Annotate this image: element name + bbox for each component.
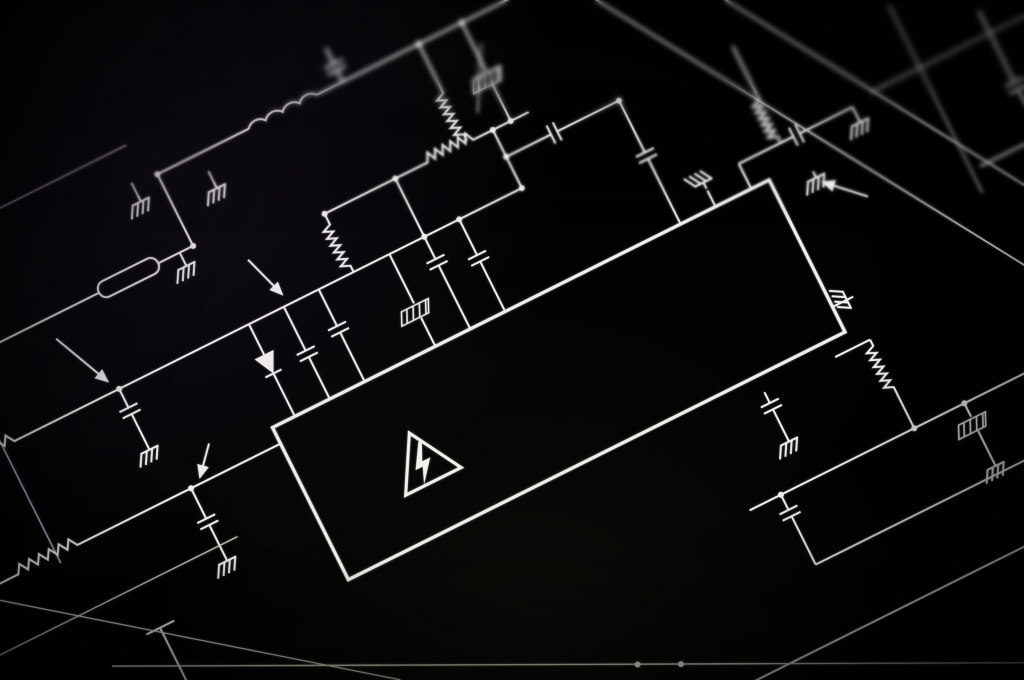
resistor-symbols xyxy=(0,0,904,680)
schematic-wires xyxy=(0,0,1024,680)
ic-outline xyxy=(272,180,845,580)
schematic-plane xyxy=(0,0,1024,680)
high-voltage-warning-icon xyxy=(382,419,462,495)
defocused-wires xyxy=(317,0,1024,462)
schematic-photo xyxy=(0,0,1024,680)
ferrite-bead-symbol xyxy=(95,255,162,300)
inductor-symbol xyxy=(247,91,317,129)
